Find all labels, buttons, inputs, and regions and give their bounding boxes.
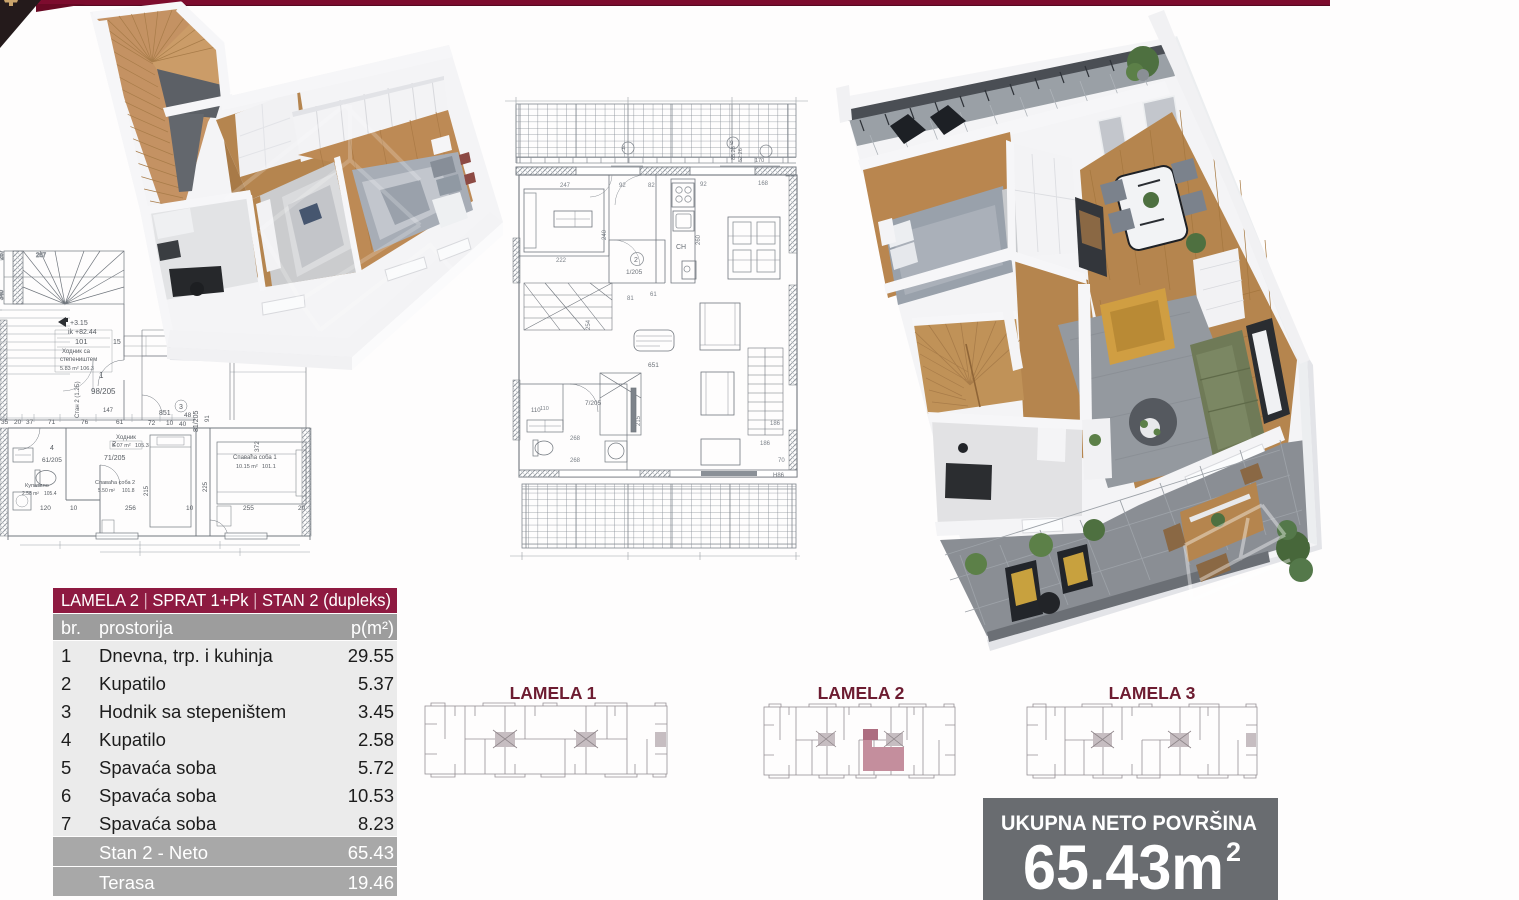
svg-text:Spavaća soba: Spavaća soba [99,785,217,806]
svg-text:61/205: 61/205 [42,457,62,464]
svg-text:10.53: 10.53 [348,785,394,806]
svg-text:72: 72 [148,420,156,427]
svg-text:+3.15: +3.15 [70,320,88,327]
svg-text:65.43m: 65.43m [1023,833,1224,900]
svg-text:15: 15 [113,339,121,346]
svg-text:186: 186 [760,441,771,447]
svg-text:br.: br. [61,618,81,638]
svg-text:101.8: 101.8 [122,488,135,494]
svg-text:8.23: 8.23 [358,813,394,834]
svg-text:92: 92 [700,182,707,188]
svg-text:256: 256 [125,505,136,512]
svg-text:4: 4 [61,729,71,750]
svg-text:71: 71 [48,419,56,426]
svg-text:5.50 m²: 5.50 m² [98,488,115,494]
svg-text:247: 247 [560,183,571,189]
svg-text:215: 215 [636,415,642,426]
svg-text:3: 3 [61,701,71,722]
svg-text:5.72: 5.72 [358,757,394,778]
svg-text:степеништем: степеништем [60,357,97,363]
svg-text:81/205: 81/205 [193,410,200,432]
svg-text:40: 40 [179,421,187,428]
svg-text:7/205: 7/205 [585,400,602,407]
svg-text:101: 101 [75,337,88,346]
svg-text:Spavaća soba: Spavaća soba [99,813,217,834]
svg-text:p(m²): p(m²) [351,618,394,638]
svg-text:Spavaća soba: Spavaća soba [99,757,217,778]
svg-text:Stan 2 - Neto: Stan 2 - Neto [99,842,208,863]
svg-text:2: 2 [61,673,71,694]
svg-text:2.58: 2.58 [358,729,394,750]
svg-text:Ходник са: Ходник са [62,349,91,355]
svg-text:267: 267 [36,253,47,259]
svg-text:Kupatilo: Kupatilo [99,729,166,750]
svg-text:Спаваћа соба 2: Спаваћа соба 2 [95,480,135,486]
svg-text:Dnevna, trp. i kuhinja: Dnevna, trp. i kuhinja [99,645,274,666]
svg-text:255: 255 [243,505,254,512]
svg-text:340: 340 [0,289,5,300]
svg-text:71/205: 71/205 [104,455,126,462]
svg-text:1: 1 [61,645,71,666]
svg-text:120: 120 [40,505,51,512]
svg-text:101.1: 101.1 [262,464,276,470]
svg-text:52.26: 52.26 [738,148,744,162]
svg-text:Спаваћа соба 1: Спаваћа соба 1 [233,455,277,461]
svg-text:2.58 m²: 2.58 m² [22,491,39,497]
svg-text:10: 10 [70,505,78,512]
svg-text:168: 168 [758,181,769,187]
svg-text:7: 7 [61,813,71,834]
svg-text:268: 268 [570,458,581,464]
svg-text:81: 81 [627,296,634,302]
svg-text:267: 267 [0,249,5,260]
svg-text:1/205: 1/205 [626,269,643,276]
svg-text:5: 5 [61,757,71,778]
svg-text:10.15 m²: 10.15 m² [236,464,258,470]
svg-text:LAMELA 1: LAMELA 1 [510,683,597,703]
svg-text:3.45: 3.45 [358,701,394,722]
svg-text:2: 2 [1226,837,1241,867]
svg-text:2: 2 [112,439,116,448]
svg-text:170: 170 [755,158,764,164]
svg-text:2: 2 [634,257,638,264]
svg-text:240: 240 [602,229,608,240]
svg-text:225: 225 [203,481,209,492]
svg-text:1: 1 [99,371,104,380]
svg-text:65.43: 65.43 [348,842,394,863]
svg-text:268: 268 [570,436,581,442]
svg-text:4: 4 [50,445,54,452]
svg-text:LAMELA 2 | SPRAT 1+Pk | STAN 2: LAMELA 2 | SPRAT 1+Pk | STAN 2 (dupleks) [61,590,391,610]
svg-text:215: 215 [144,485,150,496]
svg-text:61: 61 [116,419,124,426]
svg-text:10: 10 [186,505,194,512]
svg-text:254: 254 [586,319,592,330]
svg-text:105.4: 105.4 [44,491,57,497]
svg-text:70: 70 [778,458,785,464]
svg-text:H86: H86 [773,473,785,479]
svg-text:372: 372 [254,441,261,452]
svg-text:222: 222 [556,258,567,264]
svg-text:Terasa: Terasa [99,872,155,893]
svg-text:85.28: 85.28 [731,146,737,160]
svg-text:10: 10 [166,420,174,427]
svg-text:LAMELA 2: LAMELA 2 [818,683,905,703]
svg-text:20: 20 [14,419,22,426]
svg-text:Hodnik sa stepeništem: Hodnik sa stepeništem [99,701,286,722]
svg-text:82: 82 [648,183,655,189]
svg-text:Купатило: Купатило [25,483,49,489]
svg-text:5.83 m² 106.3: 5.83 m² 106.3 [60,366,94,372]
svg-text:LAMELA 3: LAMELA 3 [1109,683,1196,703]
svg-text:Kupatilo: Kupatilo [99,673,166,694]
svg-text:76: 76 [81,419,89,426]
svg-text:Ходник: Ходник [116,435,136,441]
svg-text:110: 110 [540,406,549,412]
svg-text:851: 851 [159,410,171,417]
svg-text:61: 61 [650,292,657,298]
svg-text:19.46: 19.46 [348,872,394,893]
svg-text:UKUPNA NETO POVRŠINA: UKUPNA NETO POVRŠINA [1001,811,1257,835]
svg-text:29.55: 29.55 [348,645,394,666]
svg-text:35: 35 [1,419,9,426]
svg-text:147: 147 [103,408,114,414]
svg-text:92: 92 [619,183,626,189]
svg-text:651: 651 [648,362,659,369]
svg-text:3: 3 [179,404,183,411]
svg-text:91: 91 [205,415,211,422]
svg-text:186: 186 [770,421,781,427]
svg-text:37: 37 [26,419,34,426]
svg-text:20: 20 [298,505,306,512]
svg-text:98/205: 98/205 [91,387,116,396]
svg-text:6: 6 [61,785,71,806]
svg-text:5.37: 5.37 [358,673,394,694]
svg-text:CH: CH [676,244,686,251]
svg-text:prostorija: prostorija [99,618,174,638]
svg-text:260: 260 [696,234,702,245]
